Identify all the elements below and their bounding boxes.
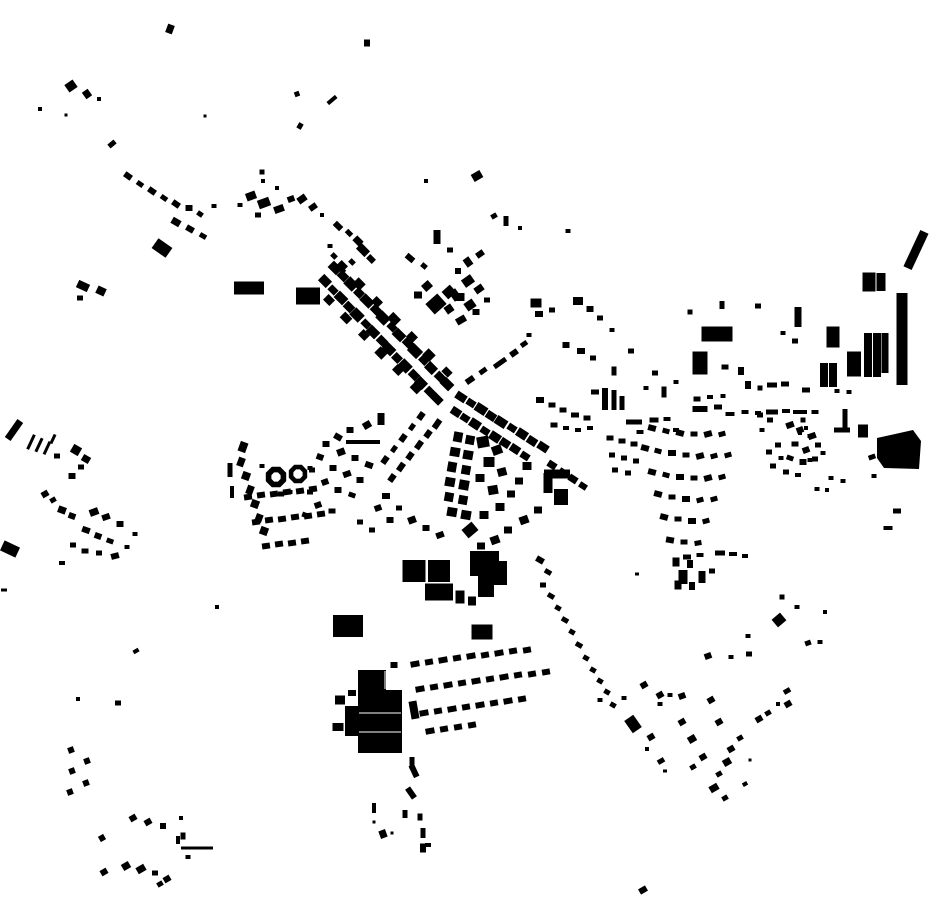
building-footprint <box>228 463 233 477</box>
building-footprint <box>270 490 279 497</box>
building-footprint <box>455 314 467 325</box>
building-footprint <box>461 522 478 539</box>
building-footprint <box>518 226 522 230</box>
building-footprint <box>459 413 470 424</box>
building-footprint <box>779 456 784 460</box>
region-town-center-main-street <box>318 260 477 406</box>
building-footprint <box>238 441 249 453</box>
building-footprint <box>265 516 274 523</box>
building-footprint <box>428 560 450 582</box>
building-footprint <box>722 365 729 370</box>
building-footprint <box>115 701 121 706</box>
building-footprint <box>346 440 380 444</box>
building-footprint <box>252 518 261 525</box>
building-footprint <box>403 560 426 582</box>
building-footprint <box>484 298 490 303</box>
building-footprint <box>566 229 571 233</box>
building-footprint <box>357 520 363 525</box>
building-footprint <box>563 426 569 430</box>
building-footprint <box>786 454 794 461</box>
building-footprint <box>699 571 706 583</box>
building-footprint <box>577 348 585 354</box>
building-footprint <box>414 292 422 299</box>
building-footprint <box>336 447 346 456</box>
building-footprint <box>185 224 195 233</box>
building-footprint <box>903 230 928 270</box>
building-footprint <box>677 718 686 727</box>
building-footprint <box>703 430 712 438</box>
building-footprint <box>463 256 474 267</box>
building-footprint <box>454 391 468 404</box>
building-footprint <box>410 660 420 667</box>
building-footprint <box>238 203 243 207</box>
building-footprint <box>396 506 402 511</box>
building-footprint <box>689 582 695 590</box>
building-footprint <box>424 179 428 183</box>
building-footprint <box>317 510 326 517</box>
building-footprint <box>575 641 584 649</box>
building-footprint <box>770 464 776 469</box>
building-footprint <box>674 380 679 384</box>
building-footprint <box>465 375 476 385</box>
building-footprint <box>461 274 475 288</box>
building-footprint <box>275 186 279 190</box>
building-footprint <box>135 864 146 875</box>
building-footprint <box>749 759 752 762</box>
building-footprint <box>468 597 476 606</box>
building-footprint <box>598 698 603 702</box>
building-footprint <box>425 293 446 314</box>
building-footprint <box>291 513 300 520</box>
building-footprint <box>121 861 131 871</box>
building-footprint <box>659 513 668 521</box>
building-footprint-map <box>0 0 930 924</box>
building-footprint <box>587 426 593 430</box>
building-footprint <box>554 604 562 611</box>
building-footprint <box>587 306 594 312</box>
building-footprint <box>547 592 556 600</box>
building-footprint <box>106 537 114 544</box>
building-footprint <box>589 666 597 673</box>
building-footprint <box>504 527 512 534</box>
building-footprint <box>468 417 482 431</box>
building-footprint <box>342 470 352 478</box>
building-footprint <box>236 457 246 468</box>
building-footprint <box>718 474 726 481</box>
building-footprint <box>654 448 662 455</box>
building-footprint <box>702 518 710 525</box>
building-footprint <box>128 814 137 823</box>
building-footprint <box>736 734 744 741</box>
building-footprint <box>475 701 485 708</box>
building-footprint <box>746 634 751 638</box>
building-footprint <box>415 685 425 692</box>
building-footprint <box>347 427 354 433</box>
building-footprint <box>638 885 648 894</box>
building-footprint <box>152 238 173 258</box>
building-footprint <box>117 521 124 527</box>
building-footprint <box>398 433 408 443</box>
building-footprint <box>549 308 555 313</box>
building-footprint <box>781 382 789 387</box>
building-footprint <box>456 591 465 604</box>
building-footprint <box>487 485 498 496</box>
building-footprint <box>703 474 712 482</box>
region-east-street <box>536 381 901 530</box>
building-footprint <box>378 829 387 839</box>
building-footprint <box>418 814 423 821</box>
building-footprint <box>707 395 713 399</box>
building-footprint <box>329 509 336 514</box>
building-footprint <box>602 388 608 410</box>
building-footprint <box>781 331 786 335</box>
building-footprint <box>181 847 213 850</box>
building-footprint <box>348 491 356 498</box>
building-footprint <box>301 537 310 544</box>
building-footprint <box>234 282 264 295</box>
building-footprint <box>165 24 175 35</box>
building-footprint <box>682 496 690 502</box>
building-footprint <box>758 386 763 391</box>
building-footprint <box>882 333 889 373</box>
building-footprint <box>795 473 801 477</box>
building-footprint <box>328 244 333 248</box>
building-footprint <box>132 648 139 654</box>
building-footprint <box>746 652 752 657</box>
building-footprint <box>802 388 810 393</box>
building-footprint <box>518 515 529 526</box>
building-footprint <box>509 348 519 358</box>
building-footprint-east-factory <box>877 430 921 469</box>
building-footprint <box>612 367 617 376</box>
building-footprint <box>423 429 433 439</box>
building-footprint <box>89 507 100 517</box>
region-north-approach-road <box>296 194 570 275</box>
building-footprint <box>465 398 476 409</box>
building-footprint <box>454 723 463 730</box>
building-footprint <box>710 453 718 460</box>
building-footprint <box>76 280 90 292</box>
building-footprint <box>694 397 701 402</box>
map-canvas <box>0 0 930 924</box>
building-footprint <box>110 552 119 560</box>
building-footprint <box>403 810 408 818</box>
building-footprint <box>352 455 359 461</box>
building-footprint <box>808 458 813 462</box>
building-footprint <box>438 656 448 663</box>
building-footprint <box>490 699 499 706</box>
building-footprint <box>689 763 697 770</box>
building-footprint <box>296 487 305 494</box>
building-footprint <box>458 479 470 491</box>
building-footprint <box>804 426 808 430</box>
building-footprint <box>186 205 193 211</box>
ring-structure-west <box>266 467 286 487</box>
building-footprint <box>714 718 723 727</box>
building-footprint <box>455 268 461 274</box>
building-footprint <box>181 833 186 840</box>
building-footprint <box>575 428 581 432</box>
building-footprint <box>509 443 522 455</box>
building-footprint <box>825 488 829 492</box>
building-footprint <box>123 171 133 181</box>
building-footprint <box>696 497 704 504</box>
building-footprint <box>215 605 219 609</box>
building-footprint <box>536 441 550 454</box>
building-footprint <box>405 253 416 263</box>
building-footprint <box>382 493 390 499</box>
building-footprint <box>490 212 498 219</box>
building-footprint <box>473 309 480 315</box>
building-footprint <box>662 428 670 435</box>
building-footprint <box>776 702 780 706</box>
building-footprint <box>453 654 462 661</box>
building-footprint <box>333 723 344 731</box>
building-footprint <box>486 675 495 682</box>
building-footprint <box>476 436 490 449</box>
region-southwest-hamlet <box>0 419 137 592</box>
building-footprint <box>584 416 591 421</box>
building-footprint <box>658 702 663 706</box>
building-footprint <box>0 540 20 557</box>
building-footprint <box>396 462 406 473</box>
building-footprint <box>609 701 617 708</box>
building-footprint <box>335 487 342 493</box>
building-footprint <box>702 327 733 342</box>
building-footprint <box>294 91 300 97</box>
building-footprint <box>414 440 424 451</box>
building-footprint <box>694 540 702 546</box>
building-footprint <box>241 471 251 481</box>
building-footprint <box>449 447 460 458</box>
building-footprint <box>721 394 726 398</box>
building-footprint <box>179 816 183 820</box>
building-footprint <box>96 551 102 556</box>
building-footprint <box>554 489 568 505</box>
building-footprint <box>262 542 271 549</box>
building-footprint <box>835 389 840 393</box>
building-footprint <box>196 210 204 218</box>
building-footprint <box>477 543 485 550</box>
building-footprint <box>679 570 688 584</box>
building-footprint <box>720 301 725 309</box>
building-footprint <box>820 363 828 387</box>
building-footprint <box>59 561 65 565</box>
building-footprint <box>663 770 667 773</box>
building-footprint <box>473 284 484 295</box>
building-footprint <box>468 721 477 728</box>
building-footprint <box>230 486 234 498</box>
building-footprint <box>409 764 420 778</box>
building-footprint <box>435 531 445 539</box>
building-footprint <box>715 551 725 556</box>
region-north-scatter <box>38 24 483 190</box>
building-footprint <box>644 386 649 390</box>
building-footprint <box>603 688 611 695</box>
building-footprint <box>792 442 799 447</box>
building-footprint <box>407 515 417 524</box>
building-footprint <box>540 583 546 588</box>
building-footprint <box>364 40 370 47</box>
building-footprint <box>635 573 639 576</box>
building-footprint <box>484 457 495 467</box>
building-footprint <box>597 316 603 321</box>
building-footprint <box>609 453 615 458</box>
building-footprint <box>419 709 429 716</box>
building-footprint <box>793 410 807 414</box>
building-footprint <box>321 478 330 486</box>
building-footprint <box>782 409 790 413</box>
building-footprint <box>147 186 157 196</box>
building-footprint <box>330 252 338 260</box>
building-footprint <box>535 311 543 317</box>
building-footprint <box>571 413 579 418</box>
building-footprint <box>462 450 473 461</box>
building-footprint <box>308 202 318 212</box>
building-footprint <box>640 444 649 452</box>
building-footprint <box>327 95 338 105</box>
building-footprint <box>68 767 76 775</box>
building-footprint <box>99 868 108 877</box>
building-footprint <box>610 328 615 332</box>
building-footprint <box>323 294 335 306</box>
building-footprint <box>434 230 441 244</box>
building-footprint <box>755 304 761 309</box>
building-footprint <box>815 487 820 491</box>
building-footprint <box>722 757 732 767</box>
building-footprint <box>101 513 111 521</box>
building-footprint <box>82 779 90 787</box>
building-footprint <box>676 474 684 480</box>
building-footprint <box>742 554 748 558</box>
building-footprint <box>97 97 101 101</box>
building-footprint <box>465 435 475 445</box>
building-footprint <box>125 545 130 549</box>
building-footprint <box>416 411 426 421</box>
building-footprint <box>273 204 285 214</box>
building-footprint <box>807 432 817 440</box>
building-footprint <box>628 349 634 354</box>
building-footprint <box>518 695 527 702</box>
building-footprint <box>775 443 781 448</box>
building-footprint <box>475 249 485 259</box>
building-footprint <box>50 434 57 444</box>
building-footprint <box>834 428 850 433</box>
building-footprint <box>493 357 507 369</box>
building-footprint <box>176 836 180 844</box>
building-footprint <box>245 191 257 202</box>
building-footprint <box>721 794 729 801</box>
building-footprint <box>434 707 443 714</box>
building-footprint <box>612 468 618 473</box>
building-footprint <box>480 511 489 519</box>
building-footprint <box>491 444 503 456</box>
building-footprint <box>662 387 667 398</box>
ring-structure-east <box>289 465 307 483</box>
building-footprint <box>378 413 385 425</box>
building-footprint <box>693 406 708 412</box>
building-footprint <box>675 517 682 522</box>
region-northwest-hamlet <box>64 79 295 300</box>
building-footprint <box>69 473 76 479</box>
building-footprint <box>801 418 806 423</box>
building-footprint <box>1 589 7 592</box>
building-footprint <box>542 668 551 675</box>
building-footprint <box>366 254 376 264</box>
region-south-spur <box>372 764 431 853</box>
building-footprint <box>408 423 416 432</box>
building-footprint <box>257 491 266 498</box>
building-footprint <box>760 428 765 432</box>
building-footprint <box>829 363 837 387</box>
building-footprint <box>481 651 490 658</box>
building-footprint <box>738 367 744 375</box>
building-footprint <box>726 745 735 754</box>
building-footprint <box>82 549 89 554</box>
building-footprint <box>82 89 92 100</box>
building-footprint <box>678 692 687 700</box>
building-footprint <box>804 640 811 647</box>
building-footprint <box>590 356 596 361</box>
building-footprint <box>244 493 253 500</box>
building-footprint <box>26 434 35 450</box>
building-footprint <box>668 693 673 697</box>
building-footprint <box>729 552 737 556</box>
building-footprint <box>863 273 876 292</box>
building-footprint <box>65 114 68 117</box>
building-footprint <box>544 568 553 576</box>
building-footprint <box>391 832 394 835</box>
building-footprint <box>783 470 789 475</box>
building-footprint <box>309 485 318 492</box>
building-footprint <box>729 655 734 659</box>
building-footprint <box>391 662 398 668</box>
building-footprint <box>812 410 819 414</box>
building-footprint <box>335 696 345 705</box>
building-footprint <box>873 333 881 377</box>
building-footprint <box>362 420 372 430</box>
building-footprint <box>691 476 698 481</box>
building-footprint <box>447 461 458 472</box>
building-footprint <box>476 474 485 482</box>
building-footprint <box>160 194 169 202</box>
region-southeast-scatter <box>622 681 793 895</box>
building-footprint <box>829 476 834 480</box>
building-footprint <box>70 444 82 456</box>
building-footprint <box>323 441 330 447</box>
building-footprint <box>458 679 467 686</box>
building-footprint <box>95 285 107 296</box>
building-footprint <box>308 466 313 470</box>
building-footprint <box>318 274 332 288</box>
building-footprint <box>515 478 523 485</box>
building-footprint <box>68 512 77 520</box>
building-footprint <box>479 426 490 437</box>
building-footprint <box>348 258 356 266</box>
building-footprint <box>868 453 876 460</box>
building-footprint <box>288 490 293 494</box>
building-footprint <box>802 446 811 454</box>
building-footprint <box>647 424 656 432</box>
building-footprint <box>257 197 271 210</box>
building-footprint <box>622 696 627 700</box>
building-footprint <box>162 875 171 884</box>
building-footprint <box>425 727 435 734</box>
building-footprint <box>390 445 398 454</box>
building-footprint <box>186 855 191 859</box>
building-footprint <box>364 461 374 469</box>
building-footprint <box>405 451 415 461</box>
